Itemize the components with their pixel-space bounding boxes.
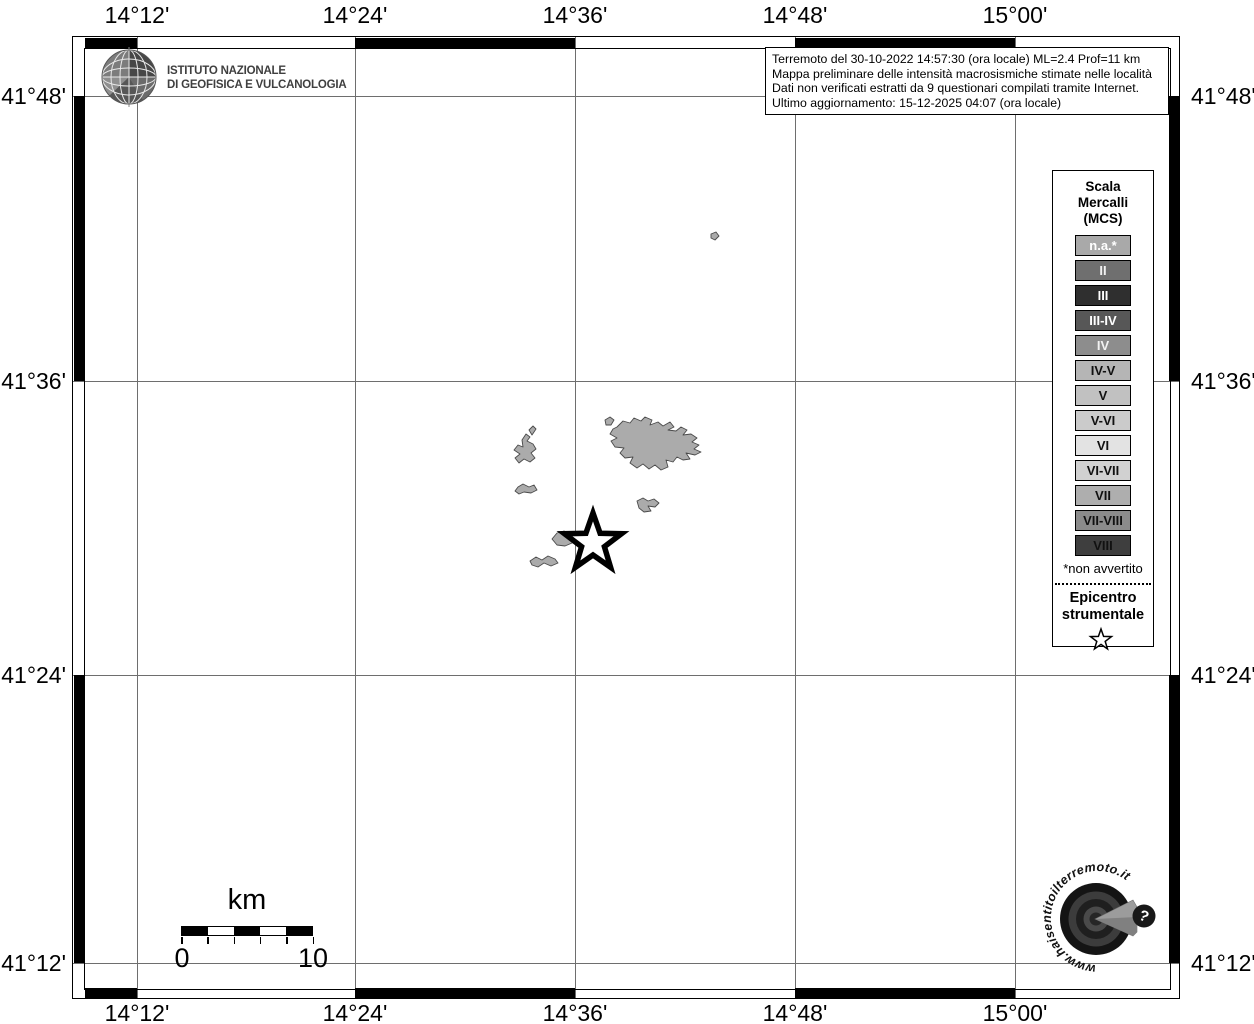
legend-title: Scala Mercalli (MCS) — [1053, 179, 1153, 227]
ingv-logo-line2: DI GEOFISICA E VULCANOLOGIA — [167, 78, 346, 92]
legend-item-3: III — [1075, 285, 1131, 306]
axis-label-left-3: 41°24' — [0, 662, 66, 689]
axis-label-top-2: 14°24' — [300, 2, 410, 29]
info-line-updated: Ultimo aggiornamento: 15-12-2025 04:07 (… — [772, 96, 1162, 111]
axis-label-top-5: 15°00' — [960, 2, 1070, 29]
legend-title-line2: Mercalli — [1053, 195, 1153, 211]
legend-title-line3: (MCS) — [1053, 211, 1153, 227]
ingv-logo-line1: ISTITUTO NAZIONALE — [167, 64, 346, 78]
legend-footnote: *non avvertito — [1053, 561, 1153, 576]
axis-label-right-1: 41°48' — [1191, 83, 1254, 110]
legend-epicenter-star-icon — [1053, 626, 1153, 660]
axis-label-bottom-1: 14°12' — [82, 1000, 192, 1024]
mercalli-scale-legend: Scala Mercalli (MCS) n.a.* II III III-IV… — [1052, 170, 1154, 647]
frame-band-segment — [85, 988, 137, 998]
axis-label-right-4: 41°12' — [1191, 950, 1254, 977]
scalebar-segment — [208, 927, 234, 935]
scalebar-tick — [207, 937, 209, 944]
map-inner-frame — [84, 48, 1171, 990]
legend-item-na: n.a.* — [1075, 235, 1131, 256]
scalebar-segment — [234, 927, 260, 935]
scalebar-segment — [182, 927, 208, 935]
axis-label-right-3: 41°24' — [1191, 662, 1254, 689]
legend-separator — [1055, 583, 1151, 585]
axis-label-left-4: 41°12' — [0, 950, 66, 977]
info-line-event: Terremoto del 30-10-2022 14:57:30 (ora l… — [772, 52, 1162, 67]
legend-epicenter-line1: Epicentro — [1053, 590, 1153, 607]
ingv-globe-icon — [99, 47, 159, 107]
haisentito-logo: ? www.haisentitoilterremoto.it — [1033, 853, 1163, 983]
legend-item-6: VI — [1075, 435, 1131, 456]
scalebar — [181, 926, 313, 936]
frame-band-segment — [1169, 675, 1179, 963]
axis-label-bottom-2: 14°24' — [300, 1000, 410, 1024]
legend-item-4-5: IV-V — [1075, 360, 1131, 381]
legend-item-8: VIII — [1075, 535, 1131, 556]
legend-title-line1: Scala — [1053, 179, 1153, 195]
legend-items: n.a.* II III III-IV IV IV-V V V-VI VI VI… — [1053, 235, 1153, 556]
axis-label-bottom-5: 15°00' — [960, 1000, 1070, 1024]
frame-band-segment — [74, 675, 84, 963]
info-line-data: Dati non verificati estratti da 9 questi… — [772, 81, 1162, 96]
axis-label-top-1: 14°12' — [82, 2, 192, 29]
frame-band-segment — [355, 38, 575, 48]
axis-label-bottom-4: 14°48' — [740, 1000, 850, 1024]
axis-label-left-1: 41°48' — [0, 83, 66, 110]
scalebar-unit-label: km — [181, 884, 313, 917]
legend-item-6-7: VI-VII — [1075, 460, 1131, 481]
legend-item-7-8: VII-VIII — [1075, 510, 1131, 531]
axis-label-top-4: 14°48' — [740, 2, 850, 29]
legend-item-2: II — [1075, 260, 1131, 281]
scalebar-min-label: 0 — [162, 943, 202, 974]
scalebar-tick — [260, 937, 262, 944]
legend-epicenter-title: Epicentro strumentale — [1053, 590, 1153, 624]
legend-epicenter-line2: strumentale — [1053, 607, 1153, 624]
scalebar-segment — [260, 927, 286, 935]
axis-label-bottom-3: 14°36' — [520, 1000, 630, 1024]
legend-item-7: VII — [1075, 485, 1131, 506]
scalebar-tick — [286, 937, 288, 944]
axis-label-left-2: 41°36' — [0, 368, 66, 395]
scalebar-tick — [234, 937, 236, 944]
scalebar-segment — [286, 927, 312, 935]
frame-band-segment — [795, 988, 1015, 998]
earthquake-info-box: Terremoto del 30-10-2022 14:57:30 (ora l… — [765, 47, 1169, 115]
ingv-logo-text: ISTITUTO NAZIONALE DI GEOFISICA E VULCAN… — [167, 64, 346, 92]
legend-item-4: IV — [1075, 335, 1131, 356]
info-line-map: Mappa preliminare delle intensità macros… — [772, 67, 1162, 82]
frame-band-segment — [355, 988, 575, 998]
scalebar-max-label: 10 — [293, 943, 333, 974]
macroseismic-map-page: 14°12' 14°24' 14°36' 14°48' 15°00' 14°12… — [0, 0, 1254, 1024]
axis-label-right-2: 41°36' — [1191, 368, 1254, 395]
axis-label-top-3: 14°36' — [520, 2, 630, 29]
frame-band-segment — [74, 96, 84, 381]
legend-item-5: V — [1075, 385, 1131, 406]
frame-band-segment — [1169, 96, 1179, 381]
legend-item-5-6: V-VI — [1075, 410, 1131, 431]
legend-item-3-4: III-IV — [1075, 310, 1131, 331]
